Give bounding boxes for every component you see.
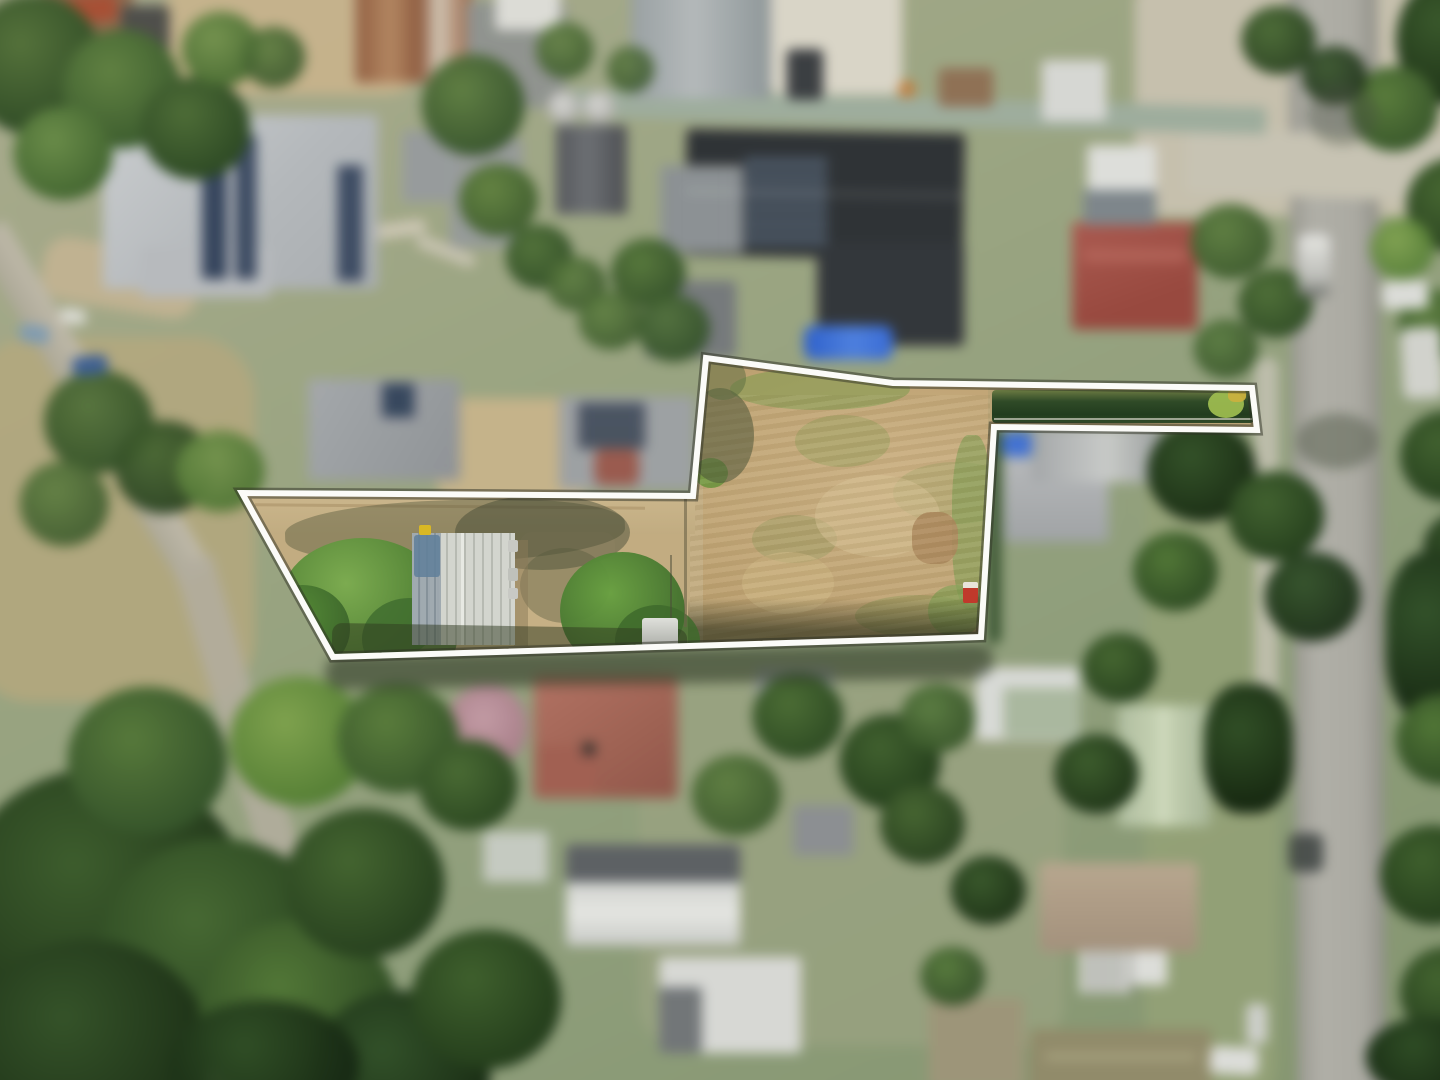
white-shed-br [1131, 951, 1167, 985]
red-hip-ridge [1082, 249, 1187, 263]
tree [411, 930, 561, 1070]
sage-roof-ridge [1161, 705, 1165, 826]
paddock-tree-shadow [700, 356, 746, 400]
aerial-photo-scene [0, 0, 1440, 1080]
dark-truck [787, 49, 823, 100]
boundary-fence-inner [684, 495, 687, 627]
tree [421, 54, 524, 155]
terracotta-chimney [582, 742, 595, 755]
red-house-grey-wing [1083, 189, 1156, 225]
car-white-br-2 [1246, 1003, 1267, 1043]
white-shed-small [642, 618, 678, 646]
tree [1054, 734, 1139, 813]
tree [920, 947, 985, 1006]
rusty-small-shed [939, 68, 994, 106]
white-small-shed [1042, 60, 1107, 121]
tree [242, 27, 305, 88]
carport-striped [1080, 951, 1133, 994]
tree [14, 107, 113, 200]
water-tank-1 [547, 91, 580, 124]
tree [536, 22, 594, 79]
car-white-driveway [1381, 280, 1429, 310]
car-white-on-road [1298, 234, 1330, 297]
tree [1264, 552, 1360, 641]
shed-side-tank [508, 568, 518, 581]
tree [880, 785, 965, 864]
tree [1228, 471, 1324, 560]
tree [1204, 684, 1293, 814]
tree [900, 684, 975, 753]
shed-side-tank [508, 588, 518, 599]
tree [285, 808, 445, 958]
swimming-pool [804, 325, 893, 359]
tree-shadow-road-top [1307, 85, 1378, 146]
tree [607, 46, 655, 93]
black-house-grey-wing [660, 166, 743, 253]
car-white-br-1 [1209, 1046, 1259, 1076]
grey-shed-bc-east [793, 805, 854, 856]
tree [418, 739, 517, 830]
warehouse-roof [631, 0, 771, 99]
car-dark-road-br [1289, 833, 1323, 871]
solar-house-panels [382, 383, 414, 417]
tree [578, 291, 643, 350]
tank-shed [556, 125, 627, 214]
tree [692, 755, 781, 836]
tree [1194, 319, 1259, 378]
taupe-house [1040, 863, 1198, 952]
shed-tarp-blue [414, 535, 440, 577]
tree [1191, 204, 1272, 279]
white-gable-building [566, 845, 740, 946]
water-tank-2 [582, 91, 615, 124]
notch-neighbor-car [595, 449, 640, 485]
olive-hip-ridge [1044, 1052, 1198, 1061]
survey-marker-red [963, 582, 978, 603]
tree [637, 295, 710, 362]
orange-bin [898, 81, 915, 98]
ne-neighbor-pool [1001, 432, 1033, 457]
red-house-white-wing [1087, 145, 1156, 190]
tree [459, 164, 538, 237]
red-hip-house [1072, 222, 1197, 329]
tree [1082, 633, 1157, 702]
tree [67, 687, 227, 835]
notch-neighbor-solar [578, 402, 645, 449]
van-white-right [1400, 326, 1440, 399]
white-green-shed-annex [1003, 688, 1078, 739]
grey-wing-bottom [659, 987, 702, 1053]
tree-shadow-on-road [1297, 414, 1378, 470]
pale-shed-bc [483, 831, 548, 882]
blue-tarp [71, 354, 108, 377]
shed-side-tank [508, 540, 518, 552]
tree [20, 461, 109, 546]
tree [1370, 218, 1435, 279]
solar-array-black-house [744, 157, 827, 248]
tree [951, 856, 1026, 925]
khaki-house-bl [928, 998, 1023, 1080]
strip-fence-line [994, 418, 1252, 420]
below-strip-roofs [1032, 427, 1162, 483]
tree [752, 674, 843, 759]
tree [1133, 532, 1218, 611]
tree [141, 77, 250, 180]
strip-yellow-patch [1228, 388, 1246, 402]
left-house-solar-3 [337, 166, 362, 281]
shed-yellow-object [419, 525, 431, 535]
